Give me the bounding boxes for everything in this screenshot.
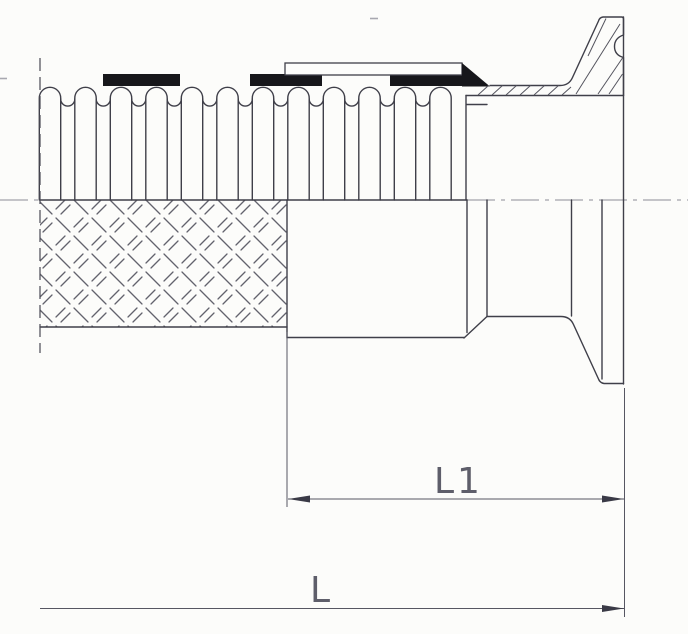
sleeve-hatching xyxy=(478,86,571,96)
dimension-l1: L1 xyxy=(287,332,624,507)
l-right-arrowhead-icon xyxy=(602,605,624,612)
braid-band-segments xyxy=(103,74,462,86)
ferrule-collar xyxy=(285,63,462,75)
l1-left-arrowhead-icon xyxy=(288,496,310,503)
fitting-outer-profile xyxy=(490,17,624,96)
bellows-valley-arcs xyxy=(61,99,430,106)
hose-end-edges xyxy=(466,96,487,201)
fitting-external-bottom xyxy=(487,200,624,384)
junction-lines xyxy=(487,200,602,379)
braid-weave-block xyxy=(40,200,287,327)
bellows-corrugations xyxy=(39,87,451,200)
hose-end-block xyxy=(287,200,487,338)
dimension-l1-label: L1 xyxy=(434,461,483,502)
dimension-l: L xyxy=(40,388,625,617)
hose-assembly-diagram: L1 L xyxy=(0,0,688,634)
fitting-section-top xyxy=(466,17,624,96)
weld-wedge xyxy=(462,63,490,87)
technical-drawing-hose-assembly: L1 L xyxy=(0,0,688,634)
dimension-l-label: L xyxy=(310,570,333,611)
l1-right-arrowhead-icon xyxy=(602,496,624,503)
